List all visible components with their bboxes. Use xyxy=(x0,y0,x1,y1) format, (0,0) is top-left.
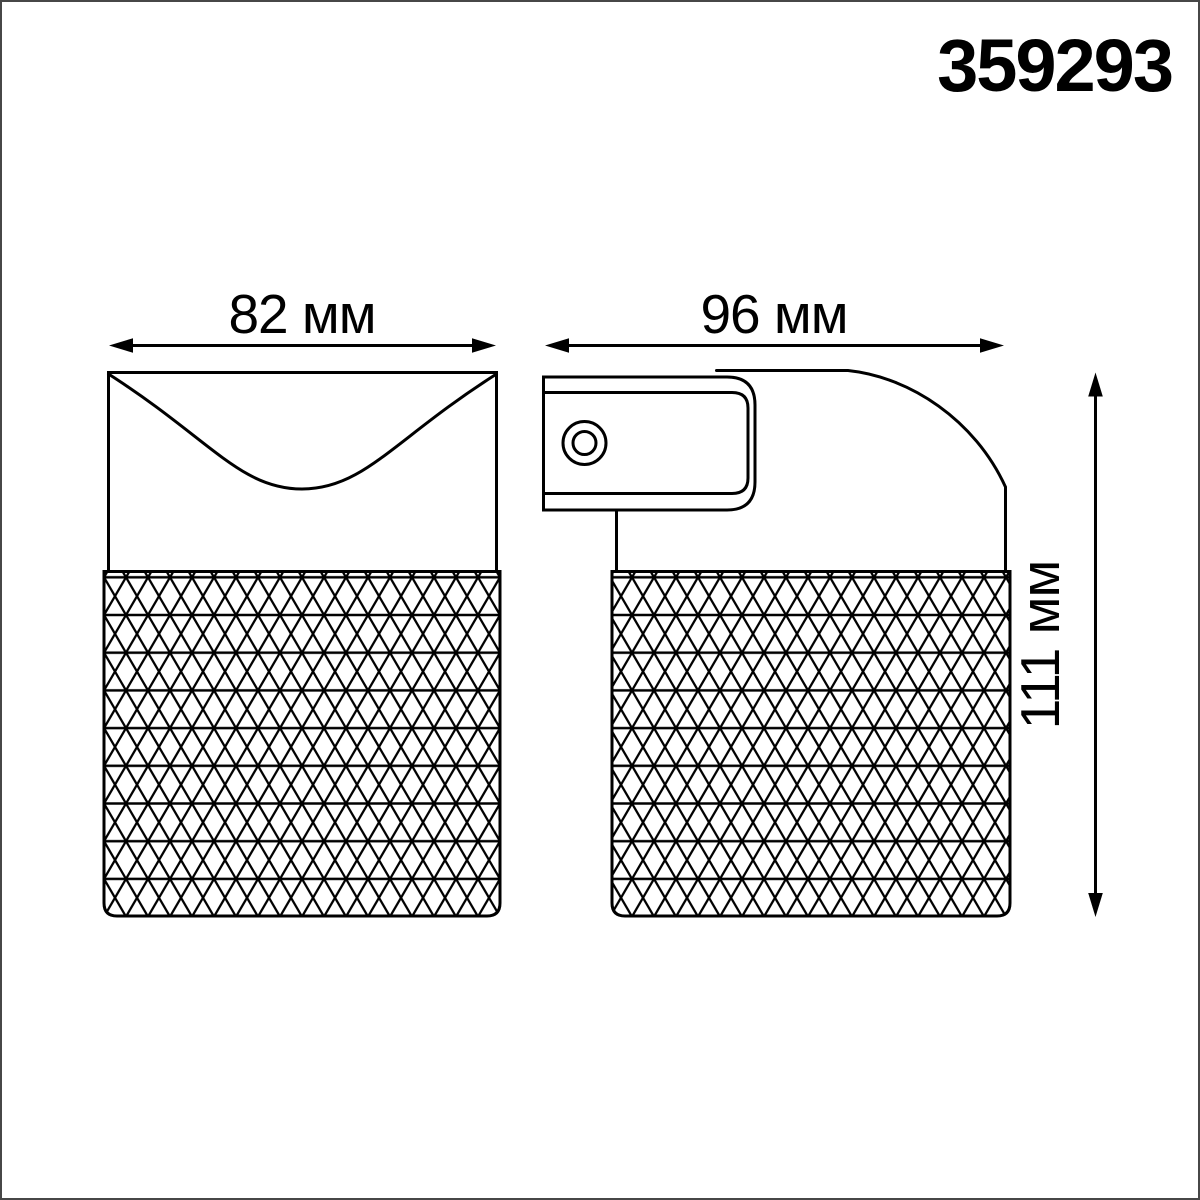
dim-height: 111 мм xyxy=(1009,373,1103,918)
side-view xyxy=(544,371,1011,917)
front-view-knurl xyxy=(104,572,500,917)
arrowhead-right-icon xyxy=(980,338,1004,353)
arrowhead-down-icon xyxy=(1088,893,1103,917)
dim-front-width: 82 мм xyxy=(109,283,496,353)
side-view-knurl xyxy=(612,572,1010,917)
product-code: 359293 xyxy=(937,24,1172,107)
arrowhead-up-icon xyxy=(1088,373,1103,397)
front-view-body xyxy=(109,373,497,572)
dim-side-width: 96 мм xyxy=(545,283,1004,353)
side-view-head-outline xyxy=(717,371,1006,572)
product-dimension-sheet: 82 мм 96 мм 111 мм 359293 xyxy=(0,0,1200,1200)
dim-side-width-label: 96 мм xyxy=(700,283,847,345)
arrowhead-left-icon xyxy=(109,338,133,353)
arrowhead-right-icon xyxy=(472,338,496,353)
mount-bracket-outline xyxy=(544,377,756,510)
dim-height-label: 111 мм xyxy=(1009,561,1071,730)
technical-drawing-svg: 82 мм 96 мм 111 мм 359293 xyxy=(0,0,1200,1200)
front-view xyxy=(104,373,500,917)
arrowhead-left-icon xyxy=(545,338,569,353)
dim-front-width-label: 82 мм xyxy=(228,283,375,345)
